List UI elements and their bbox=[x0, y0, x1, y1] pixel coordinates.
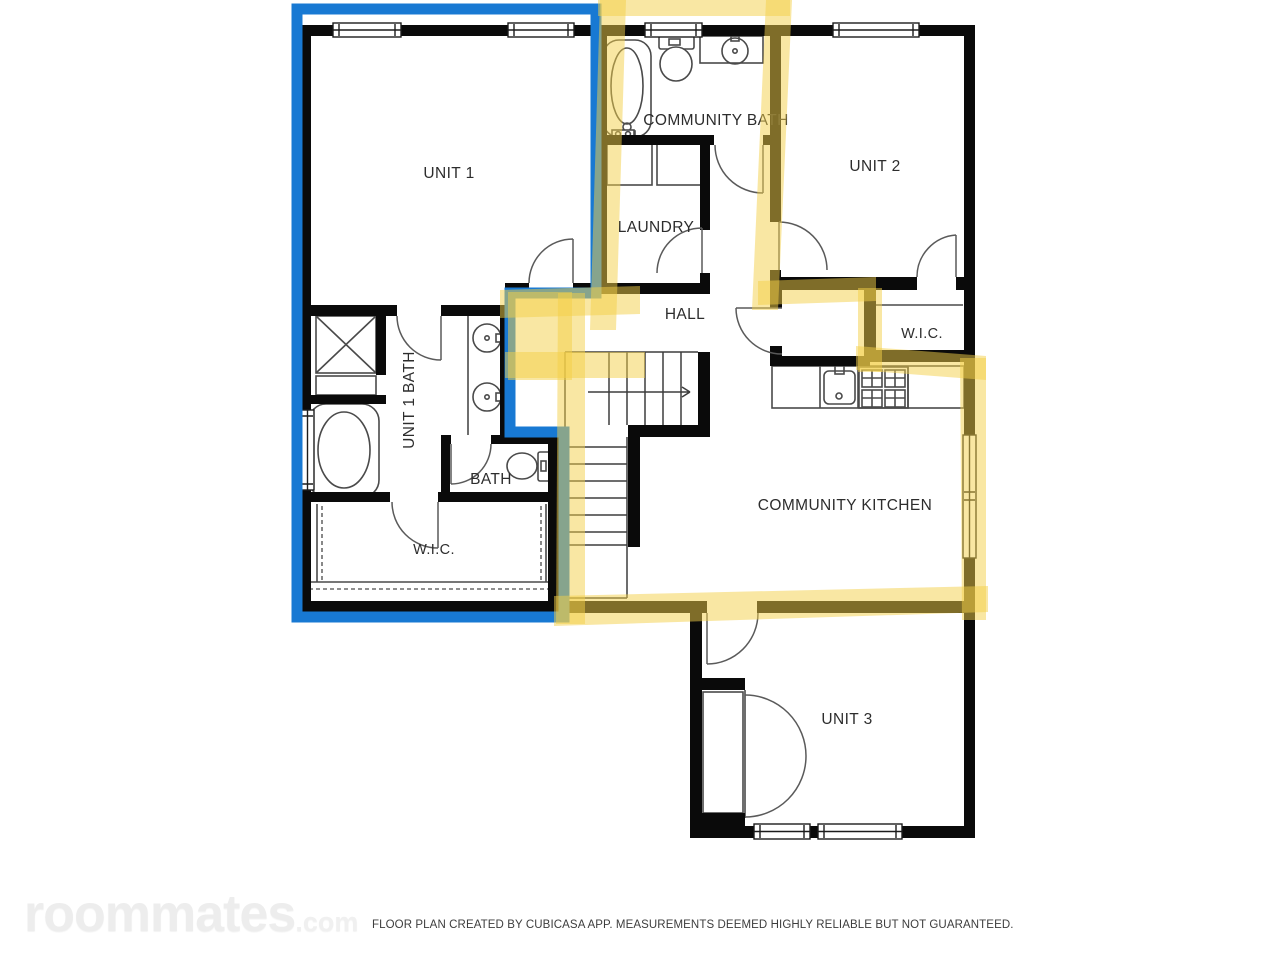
watermark-logo: roommates.com bbox=[24, 884, 358, 944]
window bbox=[301, 410, 314, 490]
room-label-community-kitchen: COMMUNITY KITCHEN bbox=[758, 497, 932, 514]
window bbox=[754, 824, 810, 839]
room-label-unit3: UNIT 3 bbox=[821, 711, 872, 728]
dryer-icon bbox=[657, 142, 703, 185]
door-arc bbox=[917, 235, 956, 277]
toilet-icon bbox=[659, 36, 694, 81]
shower-icon bbox=[316, 307, 376, 373]
room-labels: UNIT 1 COMMUNITY BATH UNIT 2 LAUNDRY HAL… bbox=[401, 112, 943, 728]
highlight-stroke bbox=[554, 586, 988, 626]
stairs-direction-arrow bbox=[588, 387, 690, 397]
watermark-brand: roommates bbox=[24, 885, 295, 943]
door-arc bbox=[529, 239, 573, 283]
door-arc bbox=[715, 145, 763, 193]
room-label-unit2-wic: W.I.C. bbox=[901, 326, 943, 342]
window bbox=[333, 23, 401, 37]
floor-plan-page: UNIT 1 COMMUNITY BATH UNIT 2 LAUNDRY HAL… bbox=[0, 0, 1280, 960]
door-arc bbox=[779, 222, 827, 270]
vanity-sinks bbox=[468, 316, 503, 435]
window bbox=[833, 23, 919, 37]
window bbox=[508, 23, 574, 37]
communal-area-highlights bbox=[500, 0, 988, 626]
disclaimer-text: FLOOR PLAN CREATED BY CUBICASA APP. MEAS… bbox=[372, 919, 1014, 931]
watermark-tld: .com bbox=[295, 907, 358, 937]
room-label-unit1: UNIT 1 bbox=[423, 165, 474, 182]
room-label-hall: HALL bbox=[665, 306, 705, 323]
closet-unit3 bbox=[703, 690, 745, 818]
room-label-unit2: UNIT 2 bbox=[849, 158, 900, 175]
linen-shelf bbox=[316, 376, 376, 395]
highlight-stroke bbox=[598, 0, 790, 16]
bathtub-icon bbox=[309, 404, 379, 497]
toilet-icon bbox=[507, 452, 553, 481]
room-label-unit1-wic: W.I.C. bbox=[413, 542, 455, 558]
closet-double-door-arcs bbox=[745, 695, 806, 817]
room-label-bath: BATH bbox=[470, 471, 512, 488]
floor-plan-drawing: UNIT 1 COMMUNITY BATH UNIT 2 LAUNDRY HAL… bbox=[0, 0, 1280, 960]
window bbox=[645, 23, 702, 37]
window bbox=[818, 824, 902, 839]
highlight-stroke bbox=[960, 358, 986, 620]
highlight-stroke bbox=[556, 293, 585, 624]
room-label-laundry: LAUNDRY bbox=[618, 219, 695, 236]
room-label-unit1-bath: UNIT 1 BATH bbox=[401, 351, 418, 449]
sink-icon bbox=[700, 36, 763, 64]
